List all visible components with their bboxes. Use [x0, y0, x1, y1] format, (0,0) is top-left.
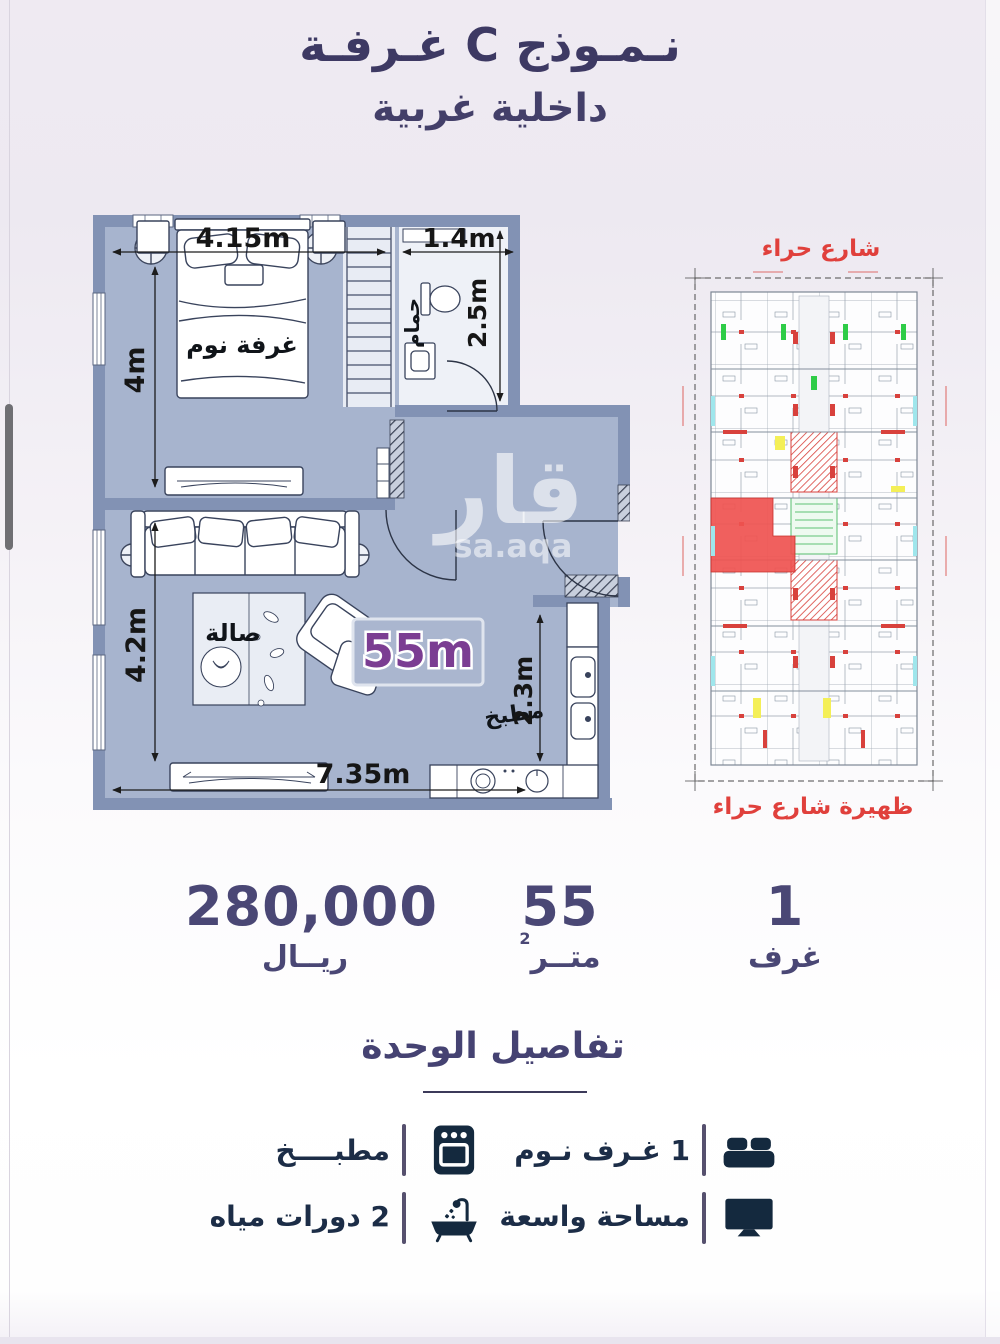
dim-bedroom-height: 4m — [120, 347, 151, 394]
page-subtitle: داخلية غربية — [0, 86, 980, 131]
area-value: 55 — [460, 878, 660, 936]
detail-separator-1 — [702, 1124, 706, 1176]
site-plan: شارع حراء — [663, 236, 965, 826]
bathtub-icon — [426, 1190, 482, 1246]
dim-kitchen-width: 2.3m — [509, 656, 538, 726]
window-living-left-1 — [93, 530, 105, 625]
price-unit: ريــال — [185, 940, 425, 975]
detail-space-label: مساحة واسعة — [478, 1200, 690, 1233]
left-edge-line — [9, 0, 10, 1344]
kitchen-bottom-counter — [430, 765, 598, 798]
svg-text:55m: 55m — [362, 624, 474, 678]
stat-price: 280,000 ريــال — [185, 878, 425, 975]
street-top-label: شارع حراء — [762, 236, 881, 262]
rooms-unit: غرف — [685, 940, 885, 975]
watermark: قار sa.aqa — [432, 438, 584, 565]
rooms-value: 1 — [685, 878, 885, 936]
detail-bathrooms-label: 2 دورات مياه — [198, 1200, 390, 1233]
window-living-left-2 — [93, 655, 105, 750]
detail-bedrooms-label: 1 غـرف نـوم — [478, 1134, 690, 1167]
stat-rooms: 1 غرف — [685, 878, 885, 975]
footer-strip — [0, 1337, 1000, 1344]
listing-flyer: نـمـوذج C غـرفـة داخلية غربية — [0, 0, 1000, 1344]
dim-bathroom-width: 1.4m — [422, 224, 495, 254]
hatched-wall-entry — [618, 485, 630, 521]
floor-plan: غرفة نوم حمام — [85, 205, 630, 820]
scrollbar-thumb[interactable] — [5, 404, 13, 550]
detail-separator-2 — [402, 1124, 406, 1176]
right-edge-strip — [985, 0, 1000, 1344]
dim-living-width: 7.35m — [316, 759, 411, 790]
svg-text:sa.aqa: sa.aqa — [454, 527, 573, 565]
street-bottom-label: ظهيرة شارع حراء — [713, 794, 914, 820]
detail-separator-4 — [402, 1192, 406, 1244]
sofa — [131, 511, 359, 577]
dim-living-height: 4.2m — [121, 607, 152, 683]
dim-bathroom-height: 2.5m — [463, 278, 492, 348]
bathroom-label: حمام — [400, 298, 424, 348]
wardrobe — [343, 227, 395, 407]
tv-console — [170, 763, 328, 791]
living-room-label: صالة — [205, 619, 261, 647]
detail-kitchen-label: مطبــــخ — [198, 1134, 390, 1167]
details-underline — [423, 1091, 587, 1093]
bedroom-label: غرفة نوم — [186, 331, 298, 359]
monitor-icon — [721, 1190, 777, 1246]
area-badge: 55m — [353, 619, 483, 685]
bed-icon — [721, 1122, 777, 1178]
kitchen-sink-counter — [567, 603, 598, 769]
detail-separator-3 — [702, 1192, 706, 1244]
shelf — [377, 448, 389, 498]
area-unit: متــر2 — [460, 940, 660, 975]
details-section-title: تفاصيل الوحدة — [318, 1026, 668, 1067]
dim-bedroom-width: 4.15m — [196, 223, 291, 254]
oven-icon — [426, 1122, 482, 1178]
window-bedroom-left — [93, 293, 105, 365]
rug — [193, 593, 305, 706]
hatched-wall-corridor — [390, 420, 404, 498]
stat-area: 55 متــر2 — [460, 878, 660, 975]
page-title: نـمـوذج C غـرفـة — [0, 18, 980, 72]
hatched-wall-vestibule — [565, 575, 618, 597]
price-value: 280,000 — [185, 878, 425, 936]
